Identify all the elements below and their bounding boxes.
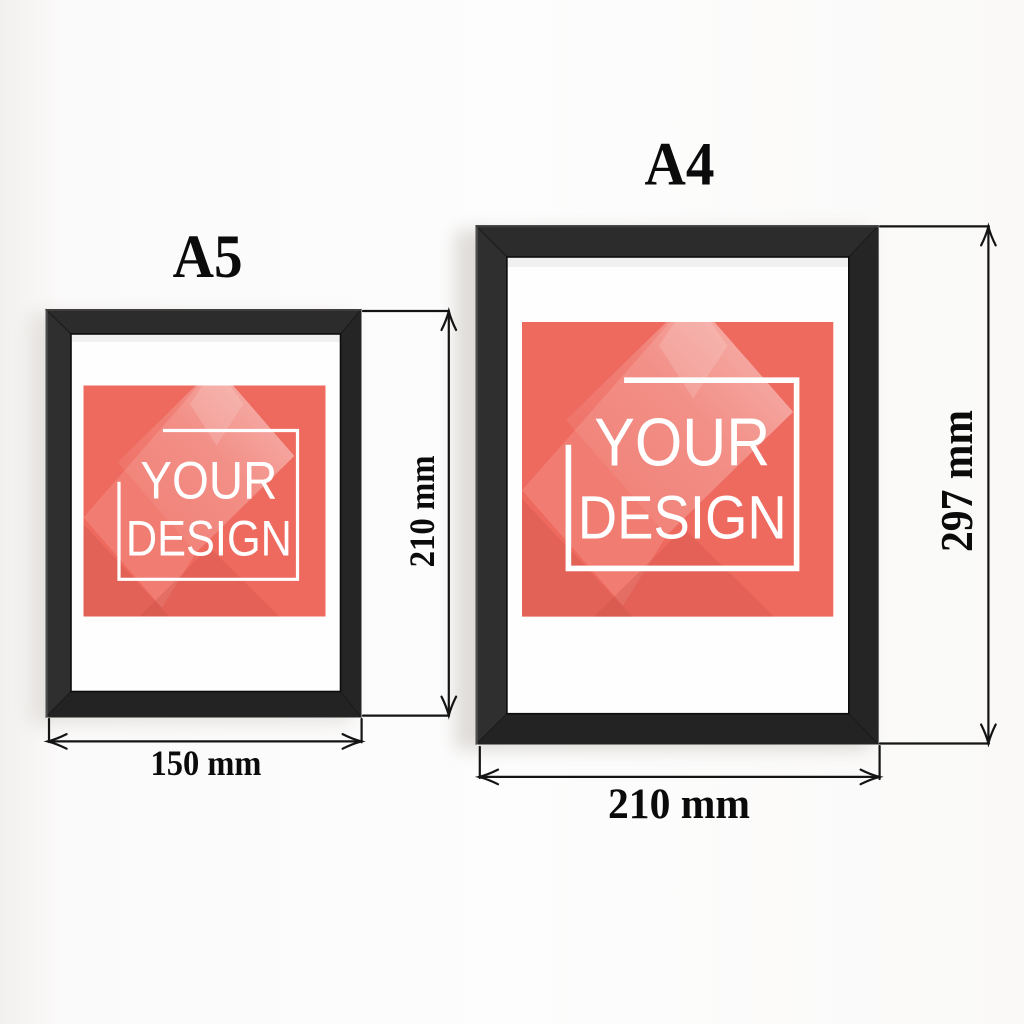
svg-text:DESIGN: DESIGN bbox=[126, 511, 292, 567]
svg-text:YOUR: YOUR bbox=[594, 405, 770, 481]
svg-text:YOUR: YOUR bbox=[140, 452, 277, 511]
svg-text:297 mm: 297 mm bbox=[931, 410, 982, 552]
svg-text:150 mm: 150 mm bbox=[151, 743, 262, 783]
svg-text:210 mm: 210 mm bbox=[608, 781, 750, 828]
svg-text:210 mm: 210 mm bbox=[402, 455, 442, 567]
svg-text:A4: A4 bbox=[645, 132, 715, 199]
svg-text:DESIGN: DESIGN bbox=[578, 484, 787, 552]
svg-text:A5: A5 bbox=[173, 224, 243, 291]
